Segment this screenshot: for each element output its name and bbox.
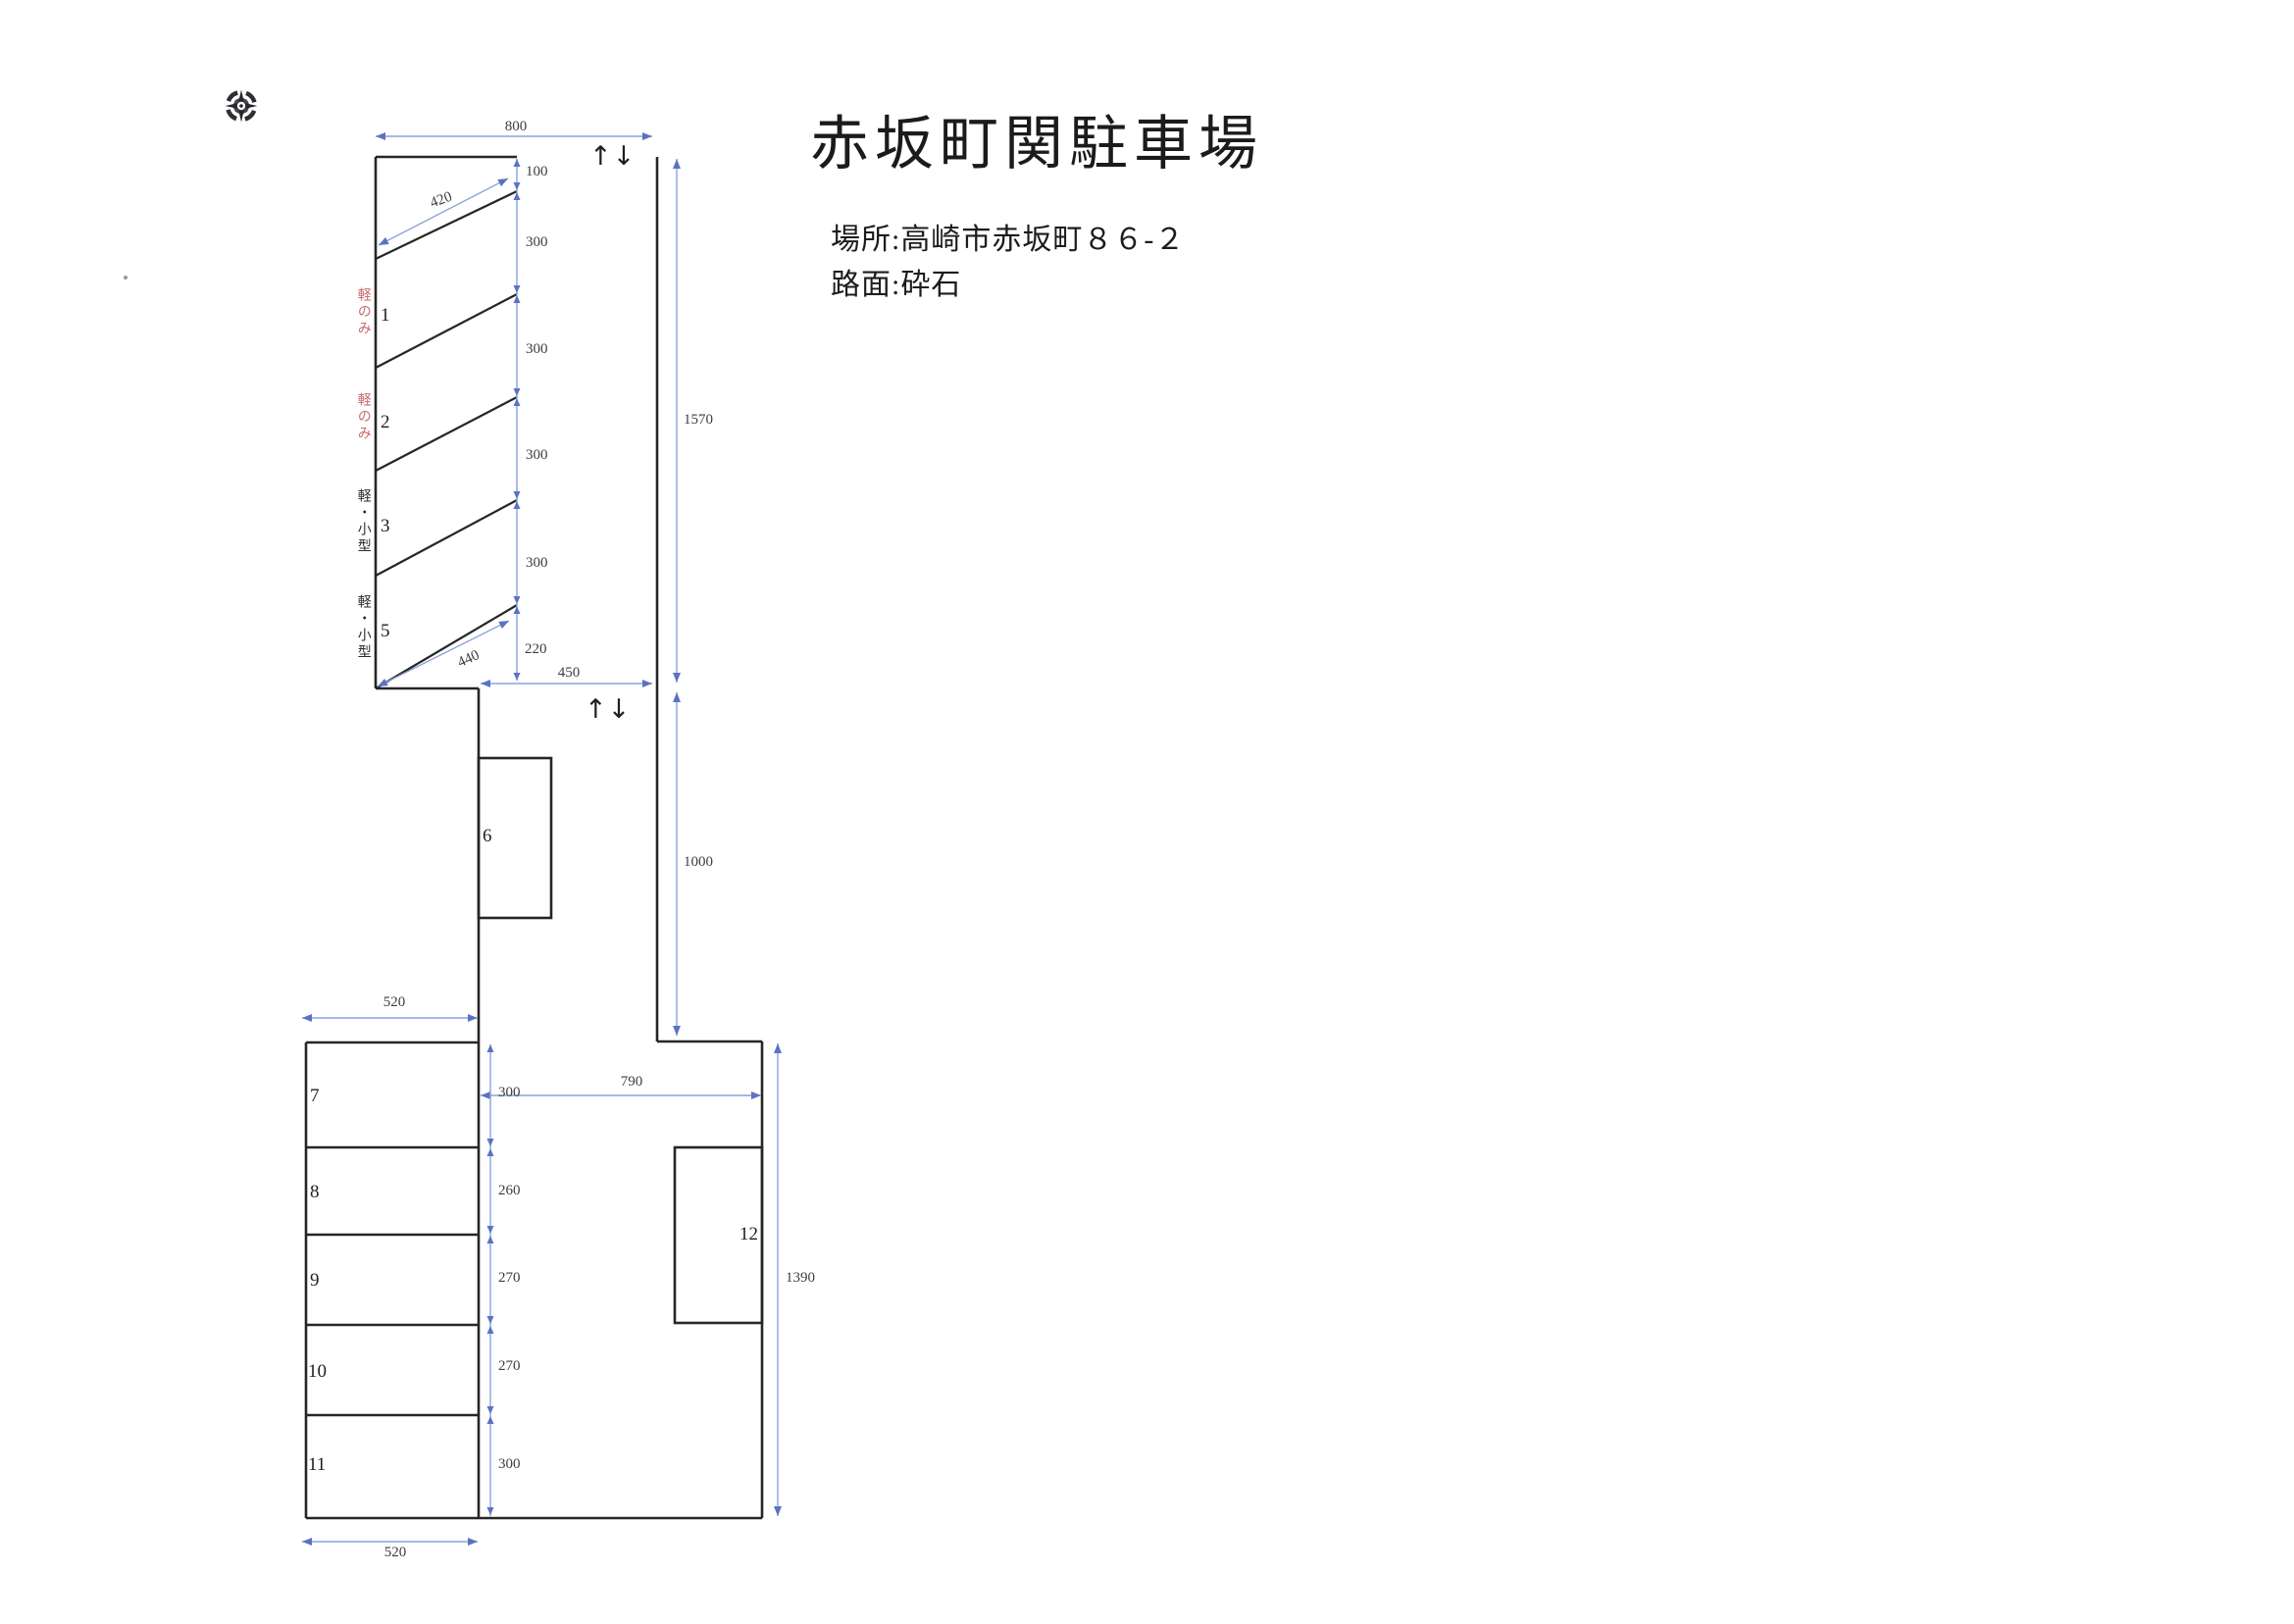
dim-lchain-260: 260 (498, 1183, 521, 1199)
dim-right-height-1390: 1390 (786, 1270, 815, 1287)
dim-lchain-300a: 300 (498, 1085, 521, 1101)
dim-lchain-270b: 270 (498, 1358, 521, 1375)
stall-2-number: 2 (381, 412, 390, 433)
stall-5-restriction: 軽・小型 (355, 594, 370, 661)
dim-top-width: 800 (505, 119, 528, 135)
stall-9-number: 9 (310, 1270, 320, 1292)
dim-lchain-270a: 270 (498, 1270, 521, 1287)
dim-chain-300a: 300 (526, 234, 548, 251)
scanned-parking-diagram-page: 赤坂町関駐車場 場所:高崎市赤坂町８６-２ 路面:砕石 (0, 0, 2294, 1624)
dim-lower-aisle-790: 790 (621, 1074, 643, 1091)
dim-chain-300b: 300 (526, 341, 548, 358)
stall-8-number: 8 (310, 1182, 320, 1203)
dim-aisle-height-1000: 1000 (684, 854, 713, 871)
stall-1-restriction: 軽のみ (355, 287, 370, 337)
stall-7-number: 7 (310, 1086, 320, 1107)
dim-chain-220: 220 (525, 641, 547, 658)
dim-lchain-300b: 300 (498, 1456, 521, 1473)
dim-chain-300d: 300 (526, 555, 548, 572)
dim-right-height-1570: 1570 (684, 412, 713, 429)
stall-3-number: 3 (381, 516, 390, 537)
stall-11-number: 11 (308, 1454, 326, 1476)
dim-chain-300c: 300 (526, 447, 548, 464)
two-way-arrows-mid: ↑↓ (585, 694, 631, 725)
parking-lot-drawing (0, 0, 2294, 1624)
stall-diagonals (376, 191, 517, 688)
stall-5-number: 5 (381, 621, 390, 642)
stall-2-restriction: 軽のみ (355, 392, 370, 442)
stall-3-restriction: 軽・小型 (355, 488, 370, 555)
stall-1-number: 1 (381, 305, 390, 327)
chain-arrows (487, 159, 521, 1515)
dim-aisle-bottom: 450 (558, 665, 581, 682)
stall-10-number: 10 (308, 1361, 327, 1383)
two-way-arrows-top: ↑↓ (589, 141, 636, 172)
walls (306, 157, 762, 1518)
stall-6-number: 6 (483, 826, 492, 847)
dim-left-width-top: 520 (383, 994, 406, 1011)
stall-12-number: 12 (739, 1224, 758, 1245)
dim-left-width-bottom: 520 (384, 1545, 407, 1561)
dim-chain-100: 100 (526, 164, 548, 180)
